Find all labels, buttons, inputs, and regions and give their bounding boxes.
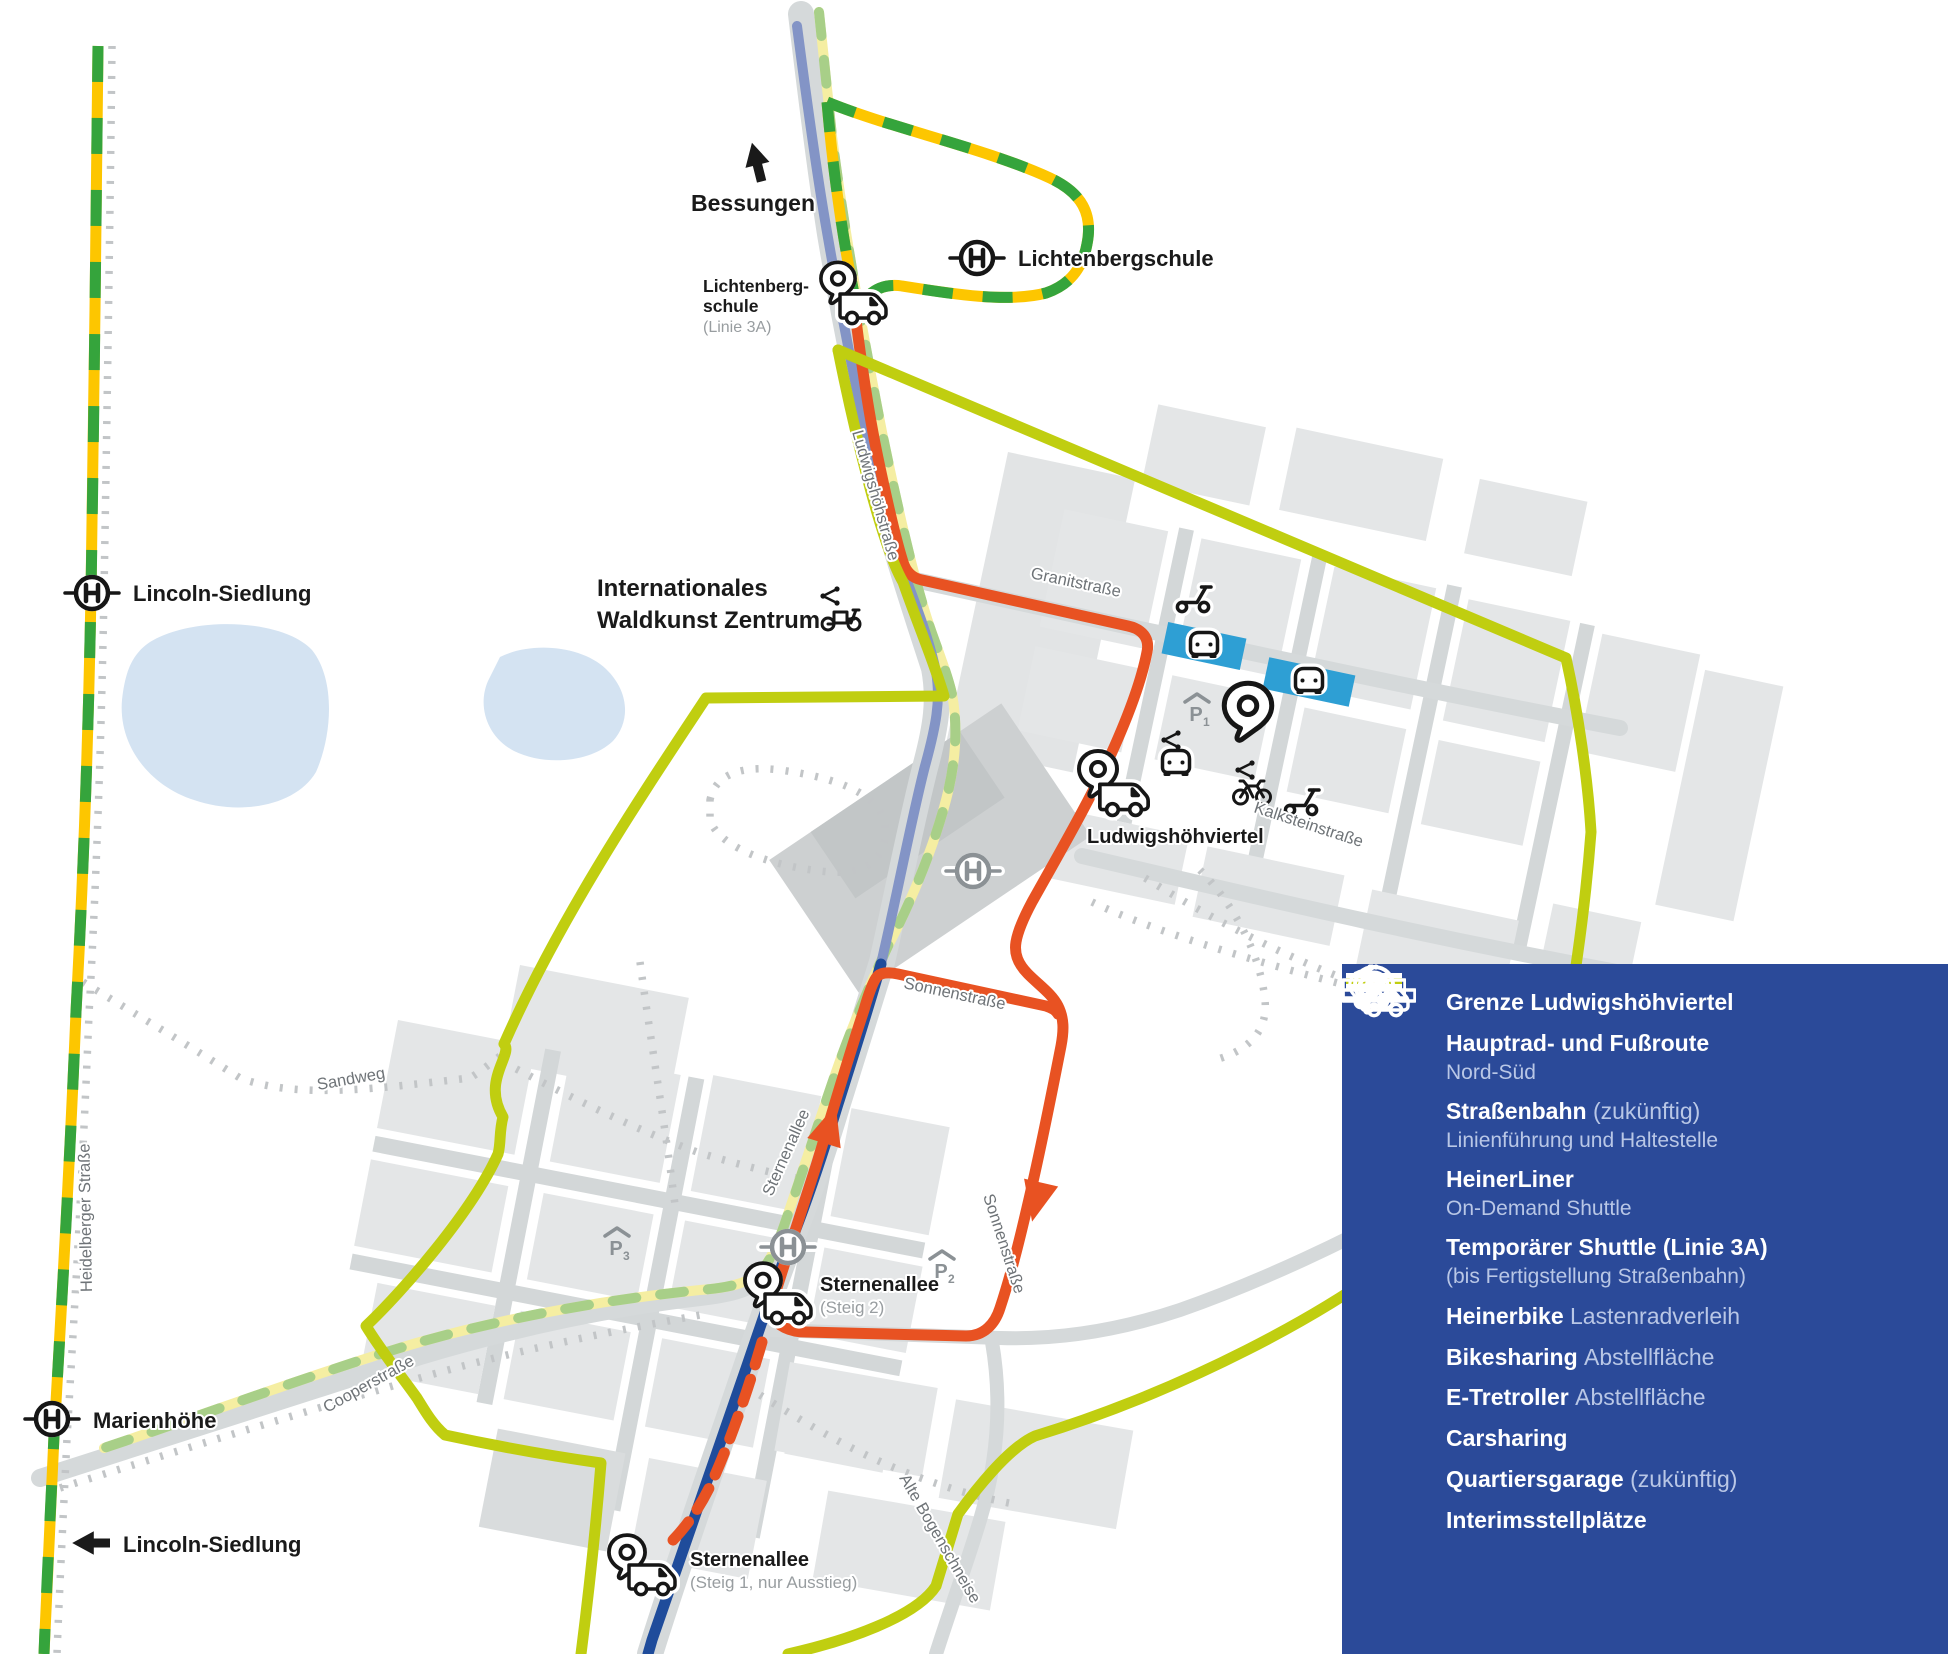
heinerbike-icon-waldkunst [820, 586, 860, 630]
legend-sublabel: Nord-Süd [1446, 1059, 1938, 1086]
garage-p3-num: 3 [623, 1249, 630, 1263]
label-marienhoehe: Marienhöhe [93, 1408, 216, 1433]
label-lincoln-siedlung-south: Lincoln-Siedlung [123, 1532, 301, 1557]
shuttle-stop-lichtenbergschule [821, 262, 886, 323]
label-sternenallee-steig1-sub: (Steig 1, nur Ausstieg) [690, 1573, 857, 1592]
mobility-map: P1 P2 P3 Bessungen Lichtenbergschule Lic… [0, 0, 1948, 1654]
legend-row-carsharing: Carsharing [1368, 1424, 1938, 1454]
label-waldkunst-2: Waldkunst Zentrum [597, 607, 820, 634]
legend-label: Grenze Ludwigshöhviertel [1446, 988, 1938, 1018]
legend-label-light: Lastenradverleih [1570, 1303, 1740, 1329]
street-heidelberger-strasse: Heidelberger Straße [75, 1143, 96, 1292]
label-sternenallee-steig2-sub: (Steig 2) [820, 1298, 884, 1317]
tram-stop-marienhoehe-icon [25, 1403, 79, 1435]
legend-label: E-Tretroller [1446, 1384, 1569, 1410]
legend-row-hauptroute: Hauptrad- und Fußroute Nord-Süd [1368, 1029, 1938, 1086]
legend-row-quartiersgarage: P Quartiersgarage (zukünftig) [1368, 1465, 1938, 1495]
legend-label: Bikesharing [1446, 1344, 1578, 1370]
label-sternenallee-steig2: Sternenallee [820, 1274, 939, 1296]
street-sonnenstrasse-1: Sonnenstraße [902, 974, 1007, 1013]
legend-row-grenze: Grenze Ludwigshöhviertel [1368, 988, 1938, 1018]
label-lichtenberg-shuttle-3: (Linie 3A) [703, 319, 771, 336]
garage-p1-letter: P [1189, 704, 1202, 726]
label-bessungen: Bessungen [691, 190, 815, 216]
legend-label-light: Abstellfläche [1584, 1344, 1714, 1370]
legend-label: HeinerLiner [1446, 1165, 1938, 1195]
legend-row-strassenbahn: Straßenbahn (zukünftig) Linienführung un… [1368, 1097, 1938, 1154]
label-waldkunst-1: Internationales [597, 575, 768, 602]
legend-label: Interimsstellplätze [1446, 1506, 1938, 1536]
tram-stop-lincoln-siedlung-icon [65, 577, 119, 609]
legend-label: Temporärer Shuttle (Linie 3A) [1446, 1233, 1938, 1263]
label-ludwigshoehviertel: Ludwigshöhviertel [1087, 826, 1264, 848]
legend-label-light: (zukünftig) [1630, 1466, 1737, 1492]
legend-label: Straßenbahn [1446, 1098, 1587, 1124]
legend-row-interimsstellplaetze: Interimsstellplätze [1368, 1506, 1938, 1536]
legend-sublabel: Linienführung und Haltestelle [1446, 1127, 1938, 1154]
garage-p3-letter: P [609, 1238, 622, 1260]
legend-row-shuttle: Temporärer Shuttle (Linie 3A) (bis Ferti… [1368, 1233, 1938, 1290]
garage-p1-num: 1 [1203, 715, 1210, 729]
bessungen-arrow-icon [740, 140, 774, 185]
lakes [122, 624, 625, 807]
legend-label-light: Abstellfläche [1575, 1384, 1705, 1410]
street-sandweg: Sandweg [316, 1064, 387, 1094]
lincoln-siedlung-arrow-icon [72, 1531, 110, 1554]
legend-row-etretroller: E-Tretroller Abstellfläche [1368, 1383, 1938, 1413]
tram-stop-lichtenbergschule-icon [950, 242, 1004, 274]
label-sternenallee-steig1: Sternenallee [690, 1549, 809, 1571]
legend-row-bikesharing: Bikesharing Abstellfläche [1368, 1343, 1938, 1373]
label-lichtenberg-shuttle-2: schule [703, 296, 759, 316]
legend-sublabel: On-Demand Shuttle [1446, 1195, 1938, 1222]
legend-label: Heinerbike [1446, 1303, 1564, 1329]
label-lichtenberg-shuttle-1: Lichtenberg- [703, 276, 809, 296]
legend-label-light: (zukünftig) [1593, 1098, 1700, 1124]
legend-row-heinerbike: Heinerbike Lastenradverleih [1368, 1302, 1938, 1332]
legend-row-heinerliner: HeinerLiner On-Demand Shuttle [1368, 1165, 1938, 1222]
legend-sublabel: (bis Fertigstellung Straßenbahn) [1446, 1263, 1938, 1290]
legend-label: Quartiersgarage [1446, 1466, 1624, 1492]
garage-p2-num: 2 [948, 1272, 955, 1286]
label-lichtenbergschule: Lichtenbergschule [1018, 246, 1214, 271]
legend-label: Carsharing [1446, 1424, 1938, 1454]
map-legend: Grenze Ludwigshöhviertel Hauptrad- und F… [1342, 964, 1948, 1654]
label-lincoln-siedlung: Lincoln-Siedlung [133, 581, 311, 606]
legend-label: Hauptrad- und Fußroute [1446, 1029, 1938, 1059]
